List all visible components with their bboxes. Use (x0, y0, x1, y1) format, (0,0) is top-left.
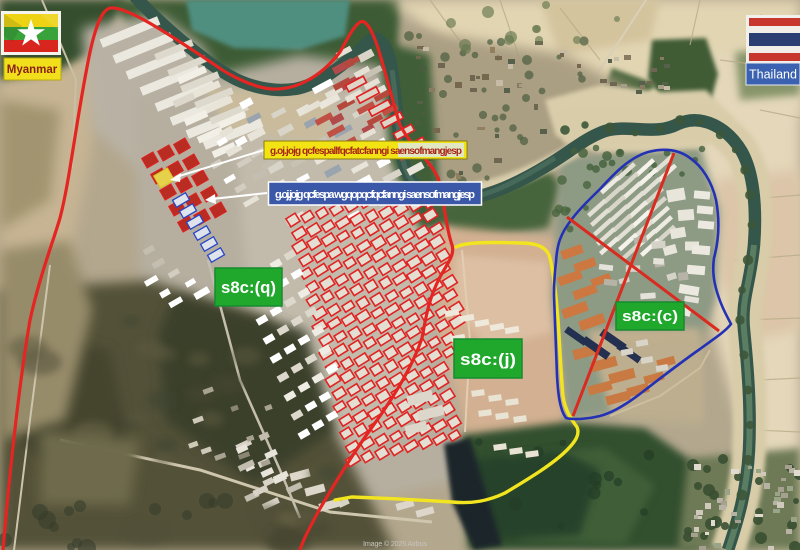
svg-text:g.oj.jojg qcfespallfqcfatcfann: g.oj.jojg qcfespallfqcfatcfanngi saensof… (270, 146, 462, 157)
svg-text:s8c:(c): s8c:(c) (622, 308, 678, 325)
svg-text:s8c:(j): s8c:(j) (460, 350, 516, 369)
svg-text:s8c:(q): s8c:(q) (221, 278, 276, 297)
svg-text:Myanmar: Myanmar (7, 64, 58, 76)
svg-text:Image © 2025 Airbus: Image © 2025 Airbus (363, 539, 427, 548)
svg-text:g.oj.jojg qcfespa wgqopqcfqcfa: g.oj.jojg qcfespa wgqopqcfqcfanngi saens… (275, 189, 475, 201)
svg-text:Thailand: Thailand (749, 68, 797, 82)
